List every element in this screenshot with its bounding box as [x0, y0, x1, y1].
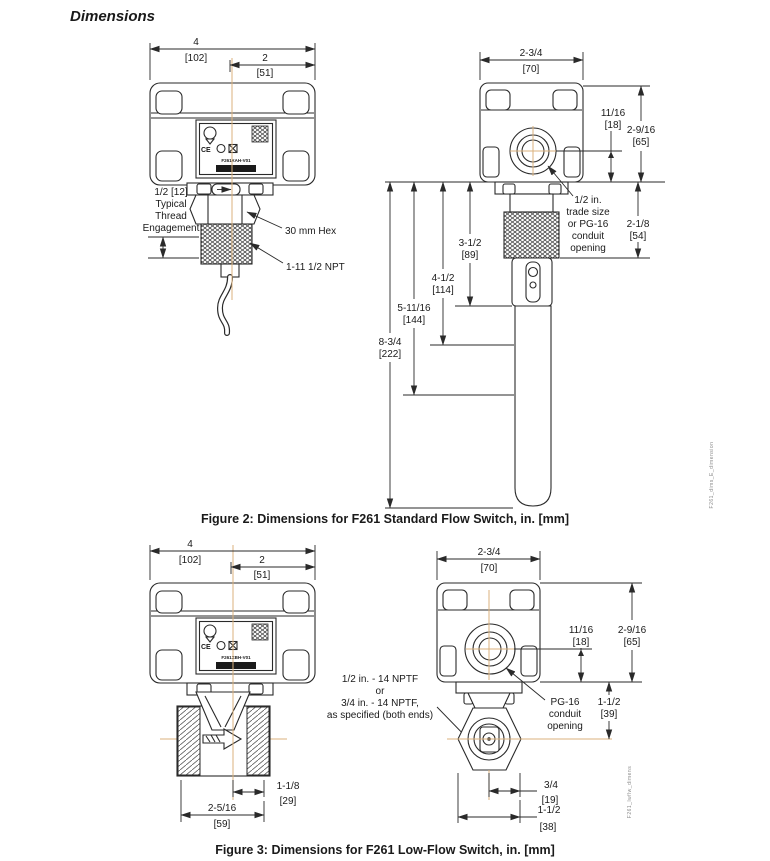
svg-text:[102]: [102] — [179, 555, 201, 566]
dim-width-4-in: 4 — [187, 539, 193, 550]
dim-width-2-mm: [51] — [257, 68, 274, 79]
valve-body — [177, 692, 270, 776]
qr-code-icon — [252, 126, 268, 142]
svg-text:[89]: [89] — [462, 250, 479, 261]
threaded-port-left — [178, 707, 200, 775]
svg-text:trade size: trade size — [566, 207, 610, 218]
sensor-neck — [468, 693, 510, 708]
svg-text:[70]: [70] — [523, 64, 540, 75]
qr-code-icon — [252, 624, 268, 640]
svg-text:[38]: [38] — [540, 822, 557, 833]
datasheet-dimensions-page: Dimensions — [0, 0, 770, 861]
thread-engagement-label: 1/2 [12] — [154, 187, 188, 198]
nameplate: CE F261XBH-V01 — [196, 618, 276, 674]
dim-3-1-2: 3-1/2 — [459, 238, 482, 249]
svg-text:[39]: [39] — [601, 709, 618, 720]
fig2-right-view — [480, 83, 583, 506]
dim-2-1-8: 2-1/8 — [627, 219, 650, 230]
dim-width-2-in: 2 — [262, 53, 268, 64]
threaded-port-right — [247, 707, 269, 775]
barcode — [216, 662, 256, 669]
svg-text:Thread: Thread — [155, 211, 187, 222]
svg-text:[18]: [18] — [573, 637, 590, 648]
svg-text:[59]: [59] — [214, 819, 231, 830]
dim-width-2-in: 2 — [259, 555, 265, 566]
dim-4-1-2: 4-1/2 — [432, 273, 455, 284]
conduit-opening — [465, 624, 515, 674]
svg-text:or PG-16: or PG-16 — [568, 219, 609, 230]
dim-1-1-8: 1-1/8 — [277, 781, 300, 792]
svg-text:3/4 in. - 14 NPTF,: 3/4 in. - 14 NPTF, — [341, 698, 419, 709]
conduit-callout: 1/2 in. — [574, 195, 601, 206]
housing-corner-tab — [283, 91, 309, 114]
svg-text:[18]: [18] — [605, 120, 622, 131]
hex-collar — [510, 194, 553, 212]
svg-text:or: or — [376, 686, 386, 697]
housing-corner-tab — [156, 151, 182, 181]
dim-5-11-16: 5-11/16 — [397, 303, 431, 314]
dim-1-1-2-39: 1-1/2 — [598, 697, 621, 708]
dim-width-4-mm: [102] — [185, 53, 207, 64]
hex-nut-30mm — [190, 195, 260, 224]
svg-text:conduit: conduit — [572, 231, 604, 242]
hex-callout: 30 mm Hex — [285, 226, 336, 237]
dim-1-1-2-38: 1-1/2 — [538, 805, 561, 816]
svg-text:[51]: [51] — [254, 570, 271, 581]
fig2-drawing-id: F261_dims_E_dimension — [709, 442, 715, 509]
svg-text:[70]: [70] — [481, 563, 498, 574]
figure3-caption: Figure 3: Dimensions for F261 Low-Flow S… — [0, 843, 770, 857]
dimensions-drawing: CE F261XAH-V01 — [0, 0, 770, 861]
svg-text:[144]: [144] — [403, 315, 425, 326]
dim-11-16: 11/16 — [569, 625, 594, 636]
npt-threads — [201, 224, 252, 264]
conduit-callout: PG-16 — [551, 697, 580, 708]
barcode — [216, 165, 256, 172]
fig3-left-view: CE F261XBH-V01 — [150, 545, 315, 800]
svg-text:opening: opening — [547, 721, 583, 732]
probe-tube — [515, 306, 551, 506]
dim-width: 2-3/4 — [520, 48, 543, 59]
ce-mark: CE — [201, 147, 211, 154]
svg-text:[114]: [114] — [432, 285, 454, 296]
svg-text:[222]: [222] — [379, 349, 401, 360]
dim-width-4-in: 4 — [193, 37, 199, 48]
svg-text:[29]: [29] — [280, 796, 297, 807]
svg-text:conduit: conduit — [549, 709, 581, 720]
dim-3-4: 3/4 — [544, 780, 558, 791]
ce-mark: CE — [201, 644, 211, 651]
dim-width: 2-3/4 — [478, 547, 501, 558]
housing-corner-tab — [156, 91, 182, 114]
svg-text:[65]: [65] — [633, 137, 650, 148]
figure2-caption: Figure 2: Dimensions for F261 Standard F… — [0, 512, 770, 526]
fig3-right-view — [437, 583, 612, 800]
npt-callout: 1-11 1/2 NPT — [286, 262, 345, 273]
dim-11-16: 11/16 — [601, 108, 626, 119]
svg-text:Typical: Typical — [155, 199, 186, 210]
nameplate: CE F261XAH-V01 — [196, 120, 276, 178]
model-number: F261XBH-V01 — [221, 655, 251, 660]
dim-2-5-16: 2-5/16 — [208, 803, 237, 814]
npt-threads — [504, 212, 559, 258]
mounting-flange — [456, 682, 522, 693]
svg-text:[65]: [65] — [624, 637, 641, 648]
dim-2-9-16: 2-9/16 — [618, 625, 647, 636]
port-size-callout: 1/2 in. - 14 NPTF — [342, 674, 418, 685]
svg-text:Engagement: Engagement — [143, 223, 200, 234]
housing-corner-tab — [283, 151, 309, 181]
dim-2-9-16: 2-9/16 — [627, 125, 656, 136]
fig3-drawing-id: F261_lwflw_dimens — [627, 766, 633, 818]
svg-text:opening: opening — [570, 243, 606, 254]
svg-text:[54]: [54] — [630, 231, 647, 242]
flow-probe — [512, 258, 552, 506]
dim-8-3-4: 8-3/4 — [379, 337, 402, 348]
svg-text:as specified (both ends): as specified (both ends) — [327, 710, 433, 721]
model-number: F261XAH-V01 — [221, 158, 251, 163]
